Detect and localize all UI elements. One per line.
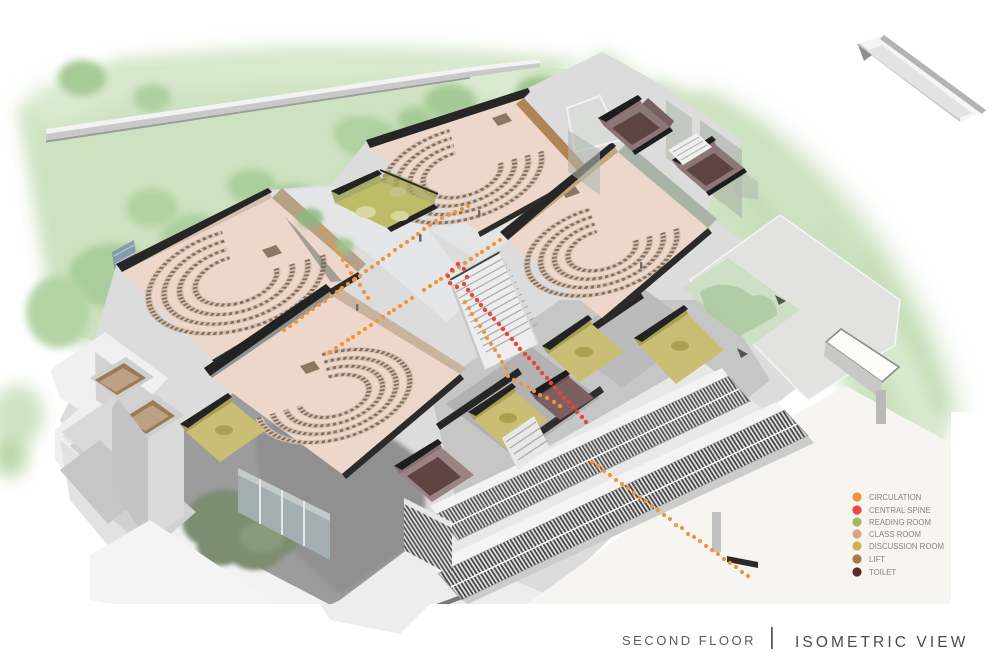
svg-text:CENTRAL SPINE: CENTRAL SPINE (869, 506, 931, 515)
svg-text:TOILET: TOILET (869, 568, 896, 577)
svg-text:DISCUSSION ROOM: DISCUSSION ROOM (869, 542, 944, 551)
svg-text:SECOND FLOOR: SECOND FLOOR (622, 633, 756, 648)
svg-text:ISOMETRIC VIEW: ISOMETRIC VIEW (795, 634, 968, 651)
svg-text:CLASS ROOM: CLASS ROOM (869, 530, 921, 539)
svg-text:CIRCULATION: CIRCULATION (869, 493, 921, 502)
svg-text:LIFT: LIFT (869, 555, 885, 564)
svg-text:READING ROOM: READING ROOM (869, 518, 931, 527)
